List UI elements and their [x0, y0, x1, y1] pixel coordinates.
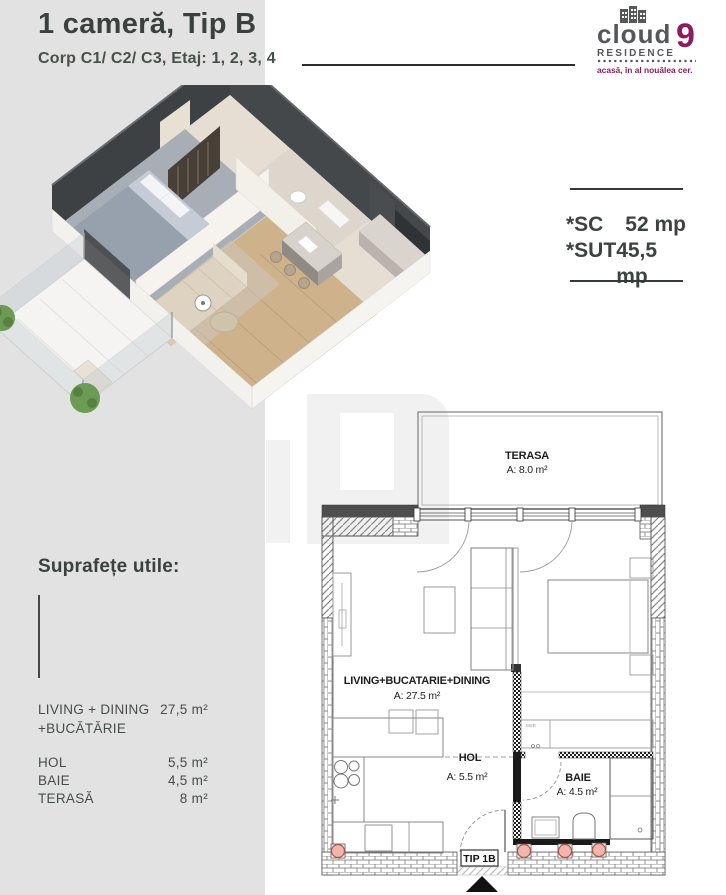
sut-label: *SUT [566, 238, 616, 290]
toilet [573, 813, 595, 839]
entrance-arrow-icon [466, 876, 498, 892]
brochure-page: 1 cameră, Tip B Corp C1/ C2/ C3, Etaj: 1… [0, 0, 726, 895]
bed [548, 580, 648, 653]
surface-row-baie: BAIE 4,5 m² [38, 772, 208, 790]
plan-entrance [460, 810, 505, 852]
surface-value: 8 m² [180, 790, 208, 808]
surface-label: LIVING + DINING +BUCĂTĂRIE [38, 700, 149, 738]
plan-labels: LIVING+BUCATARIE+DINING A: 27.5 m² HOL A… [344, 675, 598, 798]
header-rule [302, 64, 575, 66]
wardrobe [521, 720, 653, 748]
area-summary: *SC 52 mp *SUT 45,5 mp [566, 212, 686, 290]
plan-exterior-walls [322, 505, 665, 875]
surface-row-terasa: TERASĂ 8 m² [38, 790, 208, 808]
sc-row: *SC 52 mp [566, 212, 686, 238]
sut-value: 45,5 mp [616, 238, 686, 290]
surface-label: HOL [38, 754, 67, 772]
surface-row-hol: HOL 5,5 m² [38, 754, 208, 772]
plan-furniture [331, 548, 653, 853]
entrance-door-arc [460, 810, 505, 852]
sofa [471, 548, 513, 670]
terrace-label: TERASA [505, 450, 549, 462]
surface-row-living: LIVING + DINING +BUCĂTĂRIE 27,5 m² [38, 700, 208, 738]
balcony-door-arc-2 [520, 520, 572, 572]
kitchen-counter-bottom [333, 822, 443, 853]
surfaces-list: LIVING + DINING +BUCĂTĂRIE 27,5 m² HOL 5… [38, 700, 208, 808]
surface-value: 4,5 m² [168, 772, 208, 790]
sc-label: *SC [566, 212, 603, 238]
terrace-area: A: 8.0 m² [507, 464, 548, 476]
shower [610, 758, 653, 839]
hol-area: A: 5.5 m² [447, 771, 488, 783]
living-label: LIVING+BUCATARIE+DINING [344, 675, 491, 687]
nightstand [630, 558, 653, 578]
logo-residence: RESIDENCE [597, 48, 675, 59]
baie-label: BAIE [565, 772, 590, 784]
plan-bathroom [523, 758, 653, 839]
surfaces-vertical-rule [38, 595, 40, 678]
surface-label: BAIE [38, 772, 70, 790]
logo-nine: 9 [676, 17, 695, 55]
page-title: 1 cameră, Tip B [38, 8, 256, 41]
logo-wordmark: cloud [597, 19, 671, 49]
chair [416, 710, 438, 734]
chair [389, 710, 413, 733]
summary-rule-bottom [570, 280, 683, 282]
baie-area: A: 4.5 m² [557, 786, 598, 798]
page-subtitle: Corp C1/ C2/ C3, Etaj: 1, 2, 3, 4 [38, 50, 276, 68]
plan-window-band [414, 508, 641, 572]
type-label: TIP 1B [463, 853, 496, 865]
coffee-table [424, 587, 455, 633]
kitchen-sink [365, 825, 392, 851]
nightstand [630, 655, 653, 675]
cloud9-logo: cloud 9 RESIDENCE acasă, în al nouălea c… [596, 4, 724, 76]
dining-table [333, 718, 443, 757]
logo-tagline: acasă, în al nouălea cer. [597, 65, 692, 75]
surface-label: TERASĂ [38, 790, 94, 808]
surface-value: 5,5 m² [168, 754, 208, 772]
hol-label: HOL [459, 752, 482, 764]
surface-value: 27,5 m² [160, 700, 208, 719]
living-area: A: 27.5 m² [394, 690, 441, 702]
floorplan-2d: TERASA A: 8.0 m² [318, 398, 726, 895]
bathroom-door-arc [523, 762, 561, 800]
surfaces-heading: Suprafețe utile: [38, 556, 180, 578]
plan-interior-walls [333, 548, 653, 845]
background-watermark-bar [266, 440, 290, 543]
balcony-door-arc-1 [417, 520, 469, 572]
wall-annotation: MSR [526, 723, 537, 728]
summary-rule-top [570, 188, 683, 190]
sc-value: 52 mp [625, 212, 686, 238]
cloud9-logo-svg: cloud 9 RESIDENCE acasă, în al nouălea c… [596, 4, 724, 76]
sut-row: *SUT 45,5 mp [566, 238, 686, 290]
plan-terrace: TERASA A: 8.0 m² [418, 412, 662, 509]
